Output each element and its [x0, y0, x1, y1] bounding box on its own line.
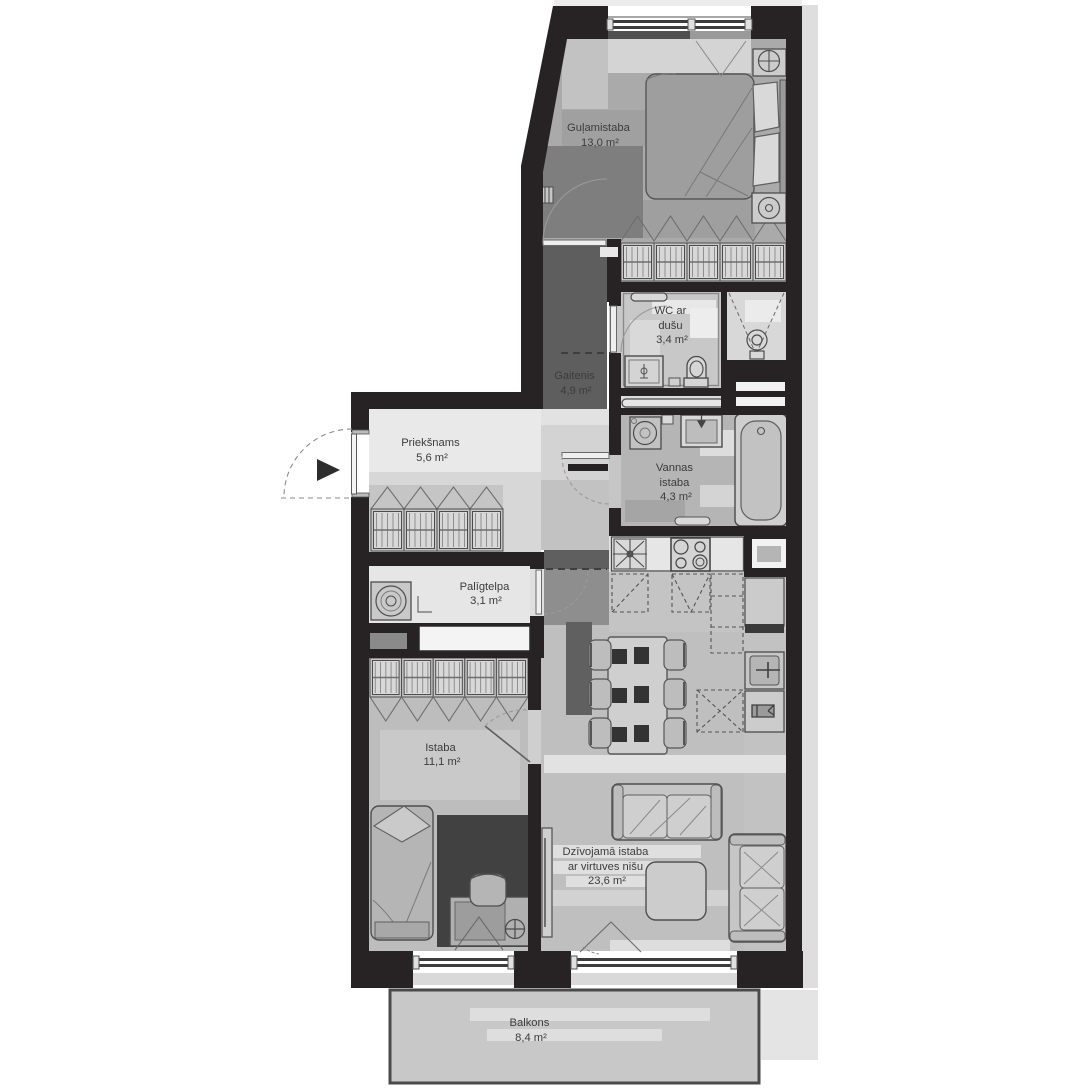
svg-text:Vannas istaba 4,3 m²: Vannas istaba 4,3 m² — [656, 462, 696, 503]
svg-text:WC ar dušu 3,4 m²: WC ar dušu 3,4 m² — [655, 305, 690, 346]
